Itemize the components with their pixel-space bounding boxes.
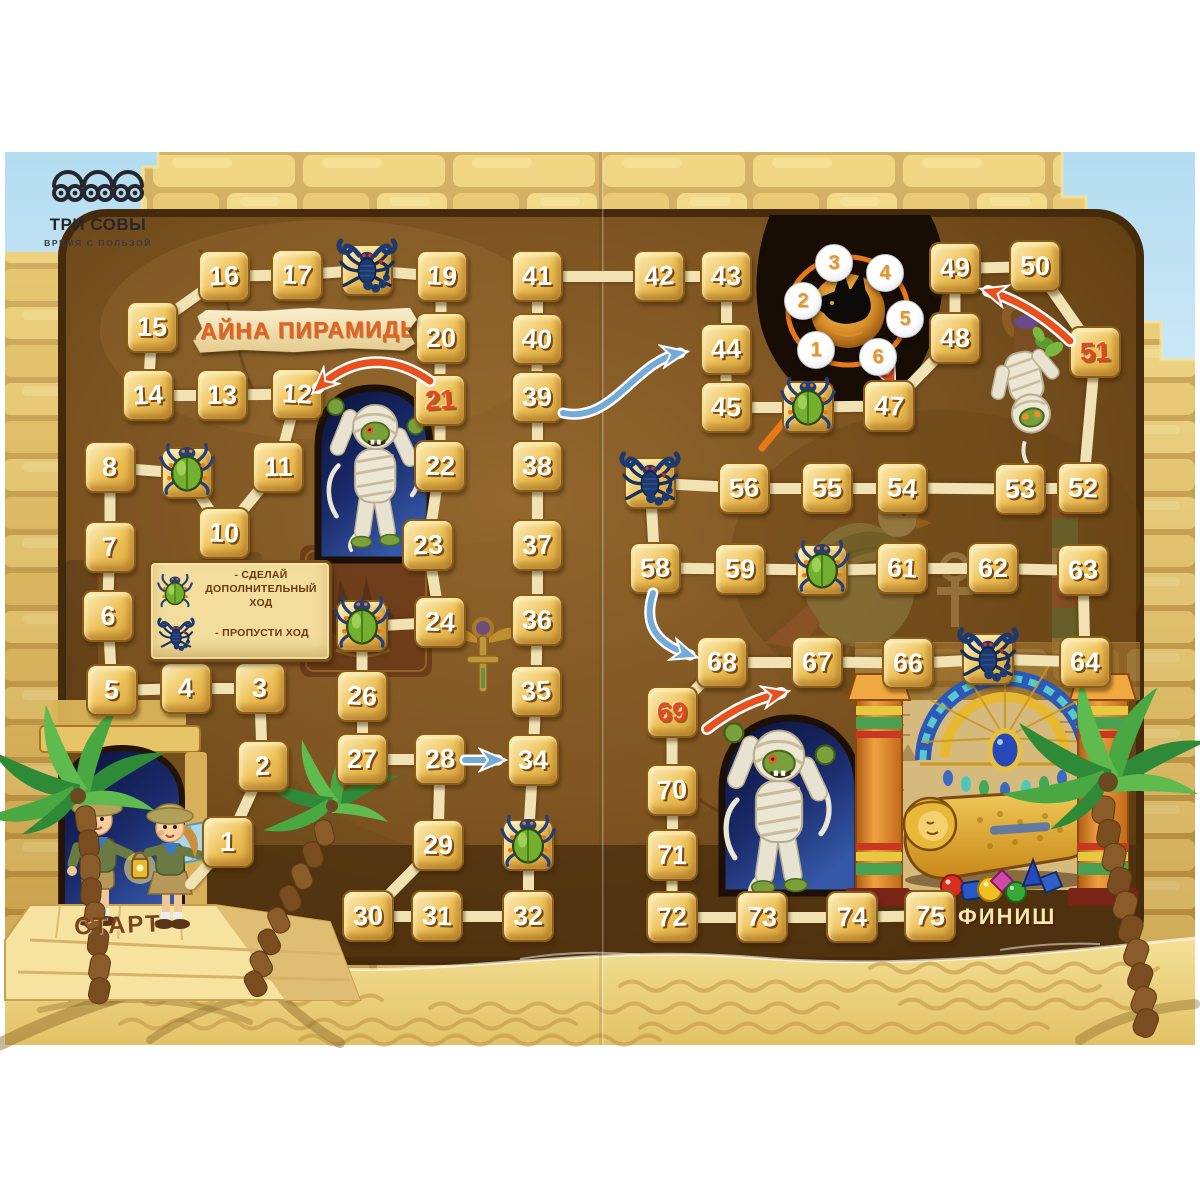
tile-53: 53 <box>994 463 1046 515</box>
tile-17: 17 <box>271 249 323 301</box>
tile-50: 50 <box>1009 240 1061 292</box>
tile-31: 31 <box>411 890 463 942</box>
scarab-icon <box>157 572 193 608</box>
tile-35: 35 <box>510 665 562 717</box>
tile-24: 24 <box>414 596 466 648</box>
tile-29: 29 <box>412 819 464 871</box>
tile-64: 64 <box>1059 636 1111 688</box>
tile-20: 20 <box>415 312 467 364</box>
tile-71: 71 <box>646 829 698 881</box>
publisher-logo: ТРИ СОВЫ ВРЕМЯ С ПОЛЬЗОЙ <box>38 166 158 248</box>
tile-41: 41 <box>511 250 563 302</box>
start-label: СТАРТ <box>58 910 179 942</box>
three-owls-icon <box>50 166 146 208</box>
tile-72: 72 <box>646 891 698 943</box>
tile-55: 55 <box>801 462 853 514</box>
legend-scorpion-row: - ПРОПУСТИ ХОД <box>157 615 323 653</box>
spinner-number-3: 3 <box>815 244 853 282</box>
scarab-rule-text: - СДЕЛАЙ ДОПОЛНИТЕЛЬНЫЙ ХОД <box>199 569 323 610</box>
tile-1: 1 <box>202 816 254 868</box>
tile-75: 75 <box>904 890 956 942</box>
spinner-number-4: 4 <box>866 254 904 292</box>
spinner-number-2: 2 <box>784 282 822 320</box>
tile-63: 63 <box>1057 544 1109 596</box>
tile-51: 51 <box>1069 326 1121 378</box>
tile-8: 8 <box>84 441 136 493</box>
scorpion-icon <box>336 234 398 296</box>
tile-15: 15 <box>126 301 178 353</box>
tile-49: 49 <box>929 242 981 294</box>
tile-58: 58 <box>629 542 681 594</box>
spinner-number-6: 6 <box>859 338 897 376</box>
tile-73: 73 <box>736 891 788 943</box>
tile-12: 12 <box>271 368 323 420</box>
tile-47: 47 <box>863 380 915 432</box>
scorpion-icon <box>157 615 195 653</box>
tile-16: 16 <box>198 250 250 302</box>
tile-40: 40 <box>511 313 563 365</box>
tile-4: 4 <box>160 662 212 714</box>
scorpion-icon <box>619 447 681 509</box>
tile-43: 43 <box>700 250 752 302</box>
tile-13: 13 <box>196 369 248 421</box>
tile-19: 19 <box>416 250 468 302</box>
tile-67: 67 <box>791 636 843 688</box>
tile-6: 6 <box>82 590 134 642</box>
tile-54: 54 <box>876 462 928 514</box>
scarab-icon <box>794 537 850 593</box>
tile-59: 59 <box>714 543 766 595</box>
tile-23: 23 <box>402 519 454 571</box>
tile-66: 66 <box>882 637 934 689</box>
tile-5: 5 <box>86 664 138 716</box>
spinner-number-5: 5 <box>886 300 924 338</box>
tile-56: 56 <box>718 462 770 514</box>
title-banner: ТАЙНА ПИРАМИДЫ <box>193 306 417 354</box>
scarab-icon <box>500 812 556 868</box>
tile-28: 28 <box>414 733 466 785</box>
tile-3: 3 <box>234 662 286 714</box>
tile-34: 34 <box>507 734 559 786</box>
tile-45: 45 <box>700 381 752 433</box>
scorpion-rule-text: - ПРОПУСТИ ХОД <box>201 627 323 641</box>
rules-legend: - СДЕЛАЙ ДОПОЛНИТЕЛЬНЫЙ ХОД - ПРОПУСТИ Х… <box>148 560 332 662</box>
tile-37: 37 <box>511 519 563 571</box>
scorpion-icon <box>957 623 1019 685</box>
tile-61: 61 <box>876 542 928 594</box>
tile-7: 7 <box>84 521 136 573</box>
tile-36: 36 <box>511 594 563 646</box>
tile-74: 74 <box>826 891 878 943</box>
legend-scarab-row: - СДЕЛАЙ ДОПОЛНИТЕЛЬНЫЙ ХОД <box>157 569 323 610</box>
tile-39: 39 <box>511 371 563 423</box>
tile-68: 68 <box>696 636 748 688</box>
scarab-icon <box>159 440 215 496</box>
scarab-icon <box>780 374 836 430</box>
tile-21: 21 <box>414 374 466 426</box>
tile-26: 26 <box>336 670 388 722</box>
tile-11: 11 <box>252 441 304 493</box>
game-board: 1234567810111213141516171920212223242627… <box>0 0 1200 1200</box>
tile-70: 70 <box>646 764 698 816</box>
scarab-icon <box>334 593 390 649</box>
tile-30: 30 <box>342 890 394 942</box>
tile-48: 48 <box>929 312 981 364</box>
tile-27: 27 <box>336 733 388 785</box>
tile-22: 22 <box>414 440 466 492</box>
tile-14: 14 <box>122 369 174 421</box>
tile-52: 52 <box>1057 462 1109 514</box>
publisher-name: ТРИ СОВЫ <box>38 215 158 235</box>
game-title: ТАЙНА ПИРАМИДЫ <box>186 315 423 344</box>
tile-38: 38 <box>511 440 563 492</box>
tile-42: 42 <box>633 250 685 302</box>
tile-69: 69 <box>646 686 698 738</box>
tile-44: 44 <box>700 323 752 375</box>
publisher-tagline: ВРЕМЯ С ПОЛЬЗОЙ <box>38 238 158 248</box>
spinner-number-1: 1 <box>797 331 835 369</box>
tile-2: 2 <box>237 740 289 792</box>
finish-label: ФИНИШ <box>958 904 1078 930</box>
tile-62: 62 <box>967 542 1019 594</box>
tile-10: 10 <box>198 507 250 559</box>
tile-32: 32 <box>502 890 554 942</box>
